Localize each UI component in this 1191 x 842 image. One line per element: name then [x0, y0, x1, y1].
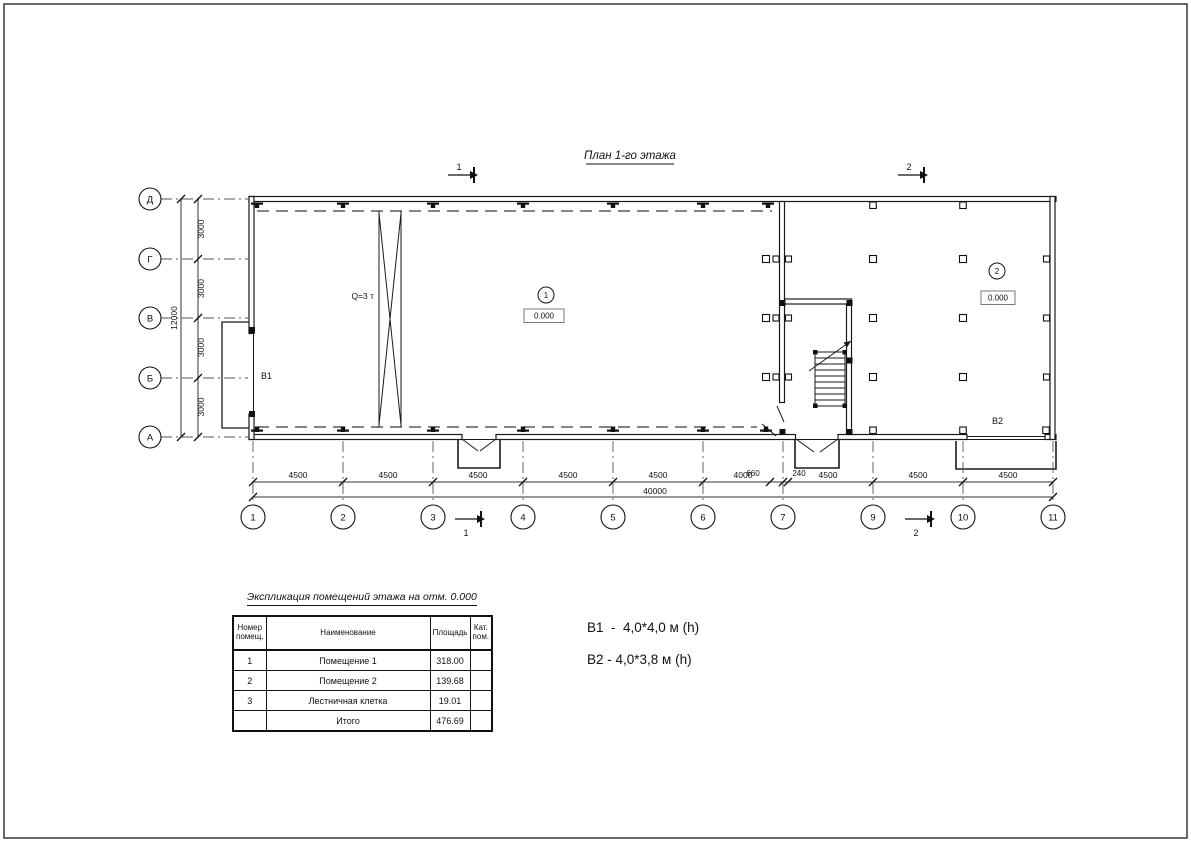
col-header-category: Кат. пом.: [470, 616, 492, 650]
table-total-row: Итого 476.69: [233, 711, 492, 732]
room-markers: 1 0.000 2 0.000: [524, 263, 1015, 323]
svg-text:4500: 4500: [999, 470, 1018, 480]
dimension-ticks: [177, 195, 1057, 501]
svg-text:9: 9: [870, 513, 875, 524]
table-row: 2 Помещение 2 139.68: [233, 671, 492, 691]
table-header-row: Номер помещ. Наименование Площадь Кат. п…: [233, 616, 492, 650]
gate-b2-label: В2: [992, 416, 1003, 426]
steel-column-marks: [251, 203, 774, 433]
svg-text:Б: Б: [147, 374, 153, 385]
col-header-name: Наименование: [266, 616, 430, 650]
svg-text:3: 3: [430, 513, 435, 524]
axis-bubbles-bottom: 1 2 3 4 5 6 7 9 10 11: [241, 505, 1065, 529]
explication-title: Экспликация помещений этажа на отм. 0.00…: [247, 591, 477, 606]
svg-text:660: 660: [746, 469, 760, 478]
svg-text:2: 2: [340, 513, 345, 524]
svg-text:240: 240: [792, 469, 806, 478]
svg-text:1: 1: [250, 513, 255, 524]
svg-text:1: 1: [463, 528, 468, 538]
gate-legend: В1 - 4,0*4,0 м (h) В2 - 4,0*3,8 м (h): [587, 620, 699, 684]
svg-text:4500: 4500: [909, 470, 928, 480]
svg-text:4500: 4500: [819, 470, 838, 480]
svg-text:3000: 3000: [196, 397, 206, 416]
col-header-area: Площадь: [430, 616, 470, 650]
drawing-sheet: План 1-го этажа: [0, 0, 1191, 842]
svg-text:3000: 3000: [196, 279, 206, 298]
dimension-lines: [181, 199, 1053, 497]
gate-legend-line2: В2 - 4,0*3,8 м (h): [587, 652, 699, 667]
dim-total-bottom: 40000: [643, 486, 667, 496]
svg-text:А: А: [147, 433, 154, 444]
svg-text:4500: 4500: [469, 470, 488, 480]
table-row: 1 Помещение 1 318.00: [233, 650, 492, 671]
svg-text:4500: 4500: [289, 470, 308, 480]
gate-legend-line1: В1 - 4,0*4,0 м (h): [587, 620, 699, 635]
svg-text:7: 7: [780, 513, 785, 524]
floor-plan-canvas: План 1-го этажа: [0, 0, 1191, 842]
gate-lines: [254, 334, 1046, 440]
room1-number: 1: [544, 291, 549, 300]
col-header-number: Номер помещ.: [233, 616, 266, 650]
room2-number: 2: [995, 267, 1000, 276]
svg-text:1: 1: [456, 162, 461, 172]
svg-text:Г: Г: [147, 255, 152, 266]
plan-title: План 1-го этажа: [584, 150, 676, 162]
gate-b1-annex: [222, 322, 249, 428]
room1-level: 0.000: [534, 312, 555, 321]
svg-text:3000: 3000: [196, 338, 206, 357]
svg-text:4500: 4500: [559, 470, 578, 480]
svg-text:11: 11: [1048, 513, 1058, 524]
square-column-marks: [763, 202, 1050, 434]
svg-text:5: 5: [610, 513, 615, 524]
svg-text:Д: Д: [147, 195, 154, 206]
cross-bracing: [379, 211, 401, 427]
svg-text:10: 10: [958, 513, 969, 524]
axis-bubbles-left: Д Г В Б А: [139, 188, 161, 448]
crane-runway-lines: [257, 211, 772, 427]
svg-text:4500: 4500: [379, 470, 398, 480]
svg-text:2: 2: [913, 528, 918, 538]
grid-centerlines: [161, 199, 1053, 504]
entrance-recesses: [458, 440, 1056, 469]
svg-text:4500: 4500: [649, 470, 668, 480]
dim-total-left: 12000: [169, 306, 179, 330]
svg-text:3000: 3000: [196, 219, 206, 238]
room2-level: 0.000: [988, 294, 1009, 303]
total-label: Итого: [266, 711, 430, 732]
svg-text:В: В: [147, 314, 153, 325]
gate-b1-label: В1: [261, 371, 272, 381]
building-walls: [249, 197, 1056, 440]
explication-table: Номер помещ. Наименование Площадь Кат. п…: [232, 615, 493, 732]
total-area: 476.69: [430, 711, 470, 732]
svg-text:4: 4: [520, 513, 525, 524]
svg-text:2: 2: [906, 162, 911, 172]
crane-capacity-label: Q=3 т: [351, 291, 374, 301]
table-row: 3 Лестничная клетка 19.01: [233, 691, 492, 711]
svg-text:6: 6: [700, 513, 705, 524]
